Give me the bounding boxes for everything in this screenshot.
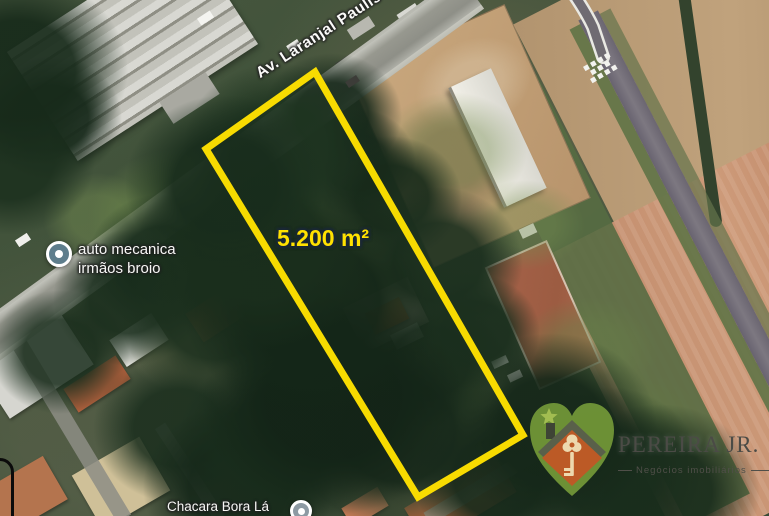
logo-subtitle: Negócios imobiliários (636, 465, 747, 476)
plot-outline (206, 72, 523, 497)
brand-logo: PEREIRA JR. Negócios imobiliários (524, 396, 769, 516)
poi-label-mechanic[interactable]: auto mecanica irmãos broio (78, 240, 176, 278)
logo-text: PEREIRA JR. Negócios imobiliários (618, 432, 768, 476)
satellite-map: Av. Laranjal Paulis 5.200 m² auto mecani… (0, 0, 769, 516)
logo-subtitle-row: Negócios imobiliários (618, 465, 768, 476)
poi-label-line1: auto mecanica (78, 240, 176, 259)
subtitle-rule-right (751, 470, 769, 471)
plot-area-label: 5.200 m² (277, 225, 369, 252)
subtitle-rule-left (618, 470, 632, 471)
poi-label-line2: irmãos broio (78, 259, 176, 278)
cattle-grid (583, 52, 618, 83)
chimney-shape (546, 423, 555, 439)
poi-pin-mechanic[interactable] (46, 241, 72, 267)
inset-frame-corner (0, 458, 14, 516)
poi-label-place[interactable]: Chacara Bora Lá (167, 499, 269, 514)
logo-title: PEREIRA JR. (618, 432, 768, 458)
poi-pin-place[interactable] (290, 500, 312, 516)
logo-heart-icon (524, 396, 620, 506)
